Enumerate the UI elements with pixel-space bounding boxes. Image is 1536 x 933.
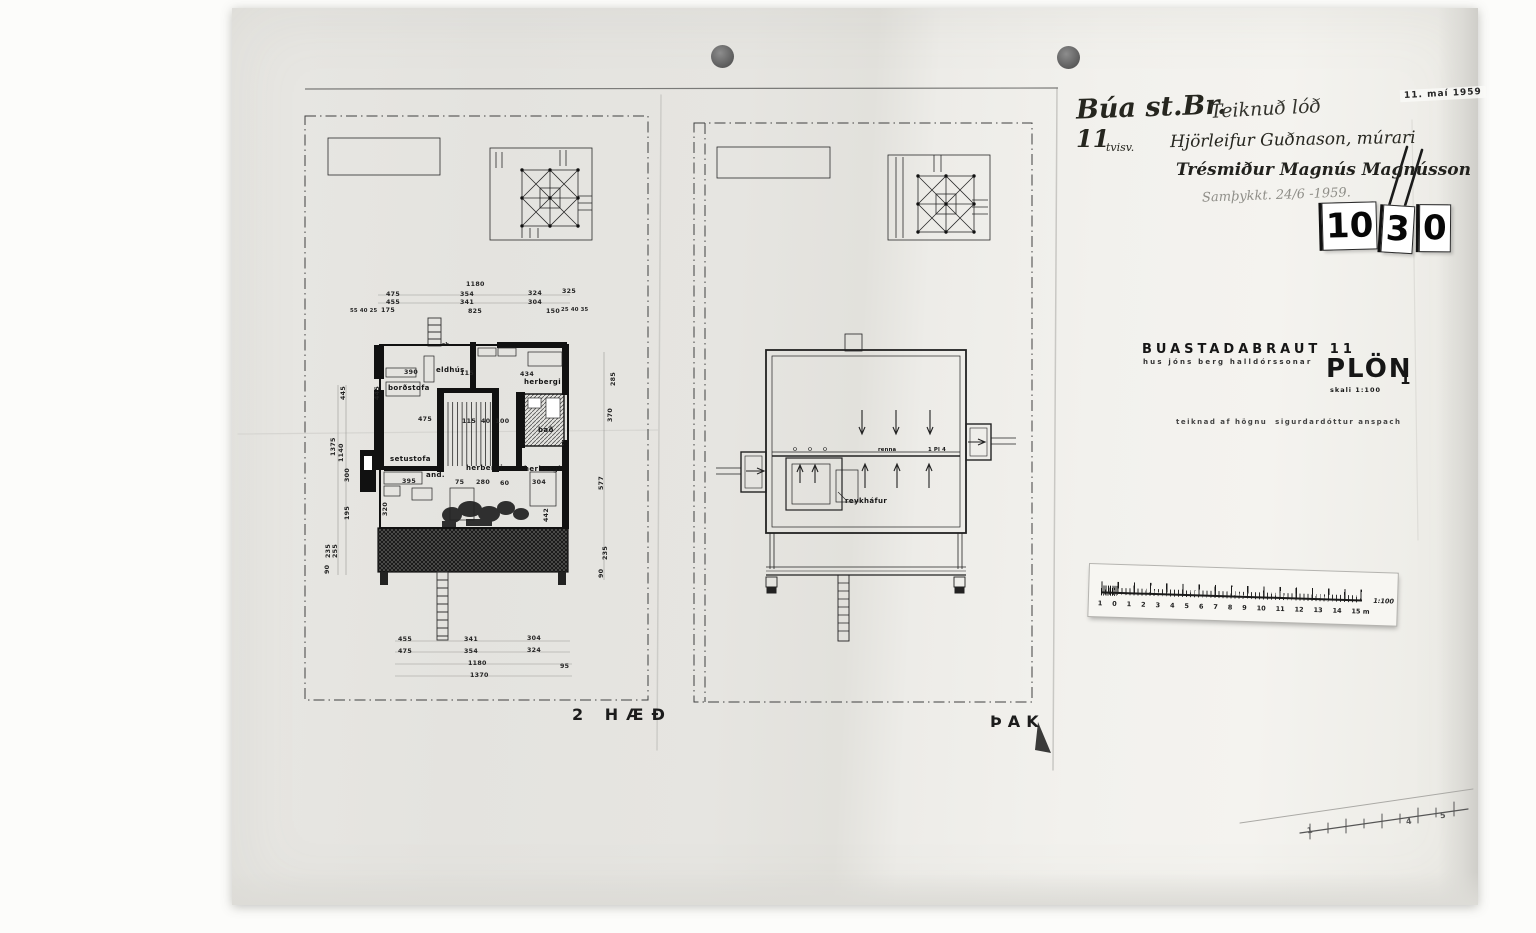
dimension-label: 341 (460, 299, 474, 306)
floor-plan-drawing (338, 295, 604, 676)
dimension-label: 55 40 25 (350, 308, 377, 314)
scale-tick-label: 2 (1141, 601, 1146, 609)
scale-tick-label: 3 (1155, 601, 1160, 609)
dimension-label: 320 (382, 502, 389, 516)
number-tile: 0 (1419, 204, 1451, 252)
site-symbols-middle (717, 147, 990, 240)
roof-plan-caption: ÞAK (990, 712, 1045, 731)
dimension-label: 1375 (330, 437, 337, 456)
dimension-label: 442 (543, 508, 550, 522)
dimension-label: 475 (398, 648, 412, 655)
dimension-label: 325 (562, 288, 576, 295)
dimension-label: 390 (404, 369, 418, 376)
dimension-label: 304 (527, 635, 541, 642)
handwriting-line1-left: Búa st.Br. (1076, 89, 1227, 125)
dimension-label: 75 (455, 479, 464, 486)
dimension-label: 304 (532, 479, 546, 486)
scale-tick-label: 14 (1332, 607, 1341, 615)
diag-ruler-label: 4 (1405, 817, 1412, 827)
dimension-label: 1140 (338, 443, 345, 462)
scale-ratio: 1:100 (1373, 597, 1394, 606)
dimension-label: 1180 (468, 660, 487, 667)
scale-tick-label: 12 (1294, 605, 1303, 613)
dimension-label: 455 (398, 636, 412, 643)
scale-tick-label: 9 (1242, 604, 1247, 612)
dimension-label: 90 (598, 569, 605, 578)
dimension-label: 475 (418, 416, 432, 423)
room-label-bath: bað (538, 426, 554, 434)
scale-tick-label: 11 (1276, 605, 1285, 613)
dimension-label: 825 (468, 308, 482, 315)
diagonal-scale-lines (1240, 789, 1473, 839)
handwriting-note-small: tvisv. (1106, 141, 1134, 154)
title-sheet-number: 1 (1400, 370, 1410, 388)
room-label-living: setustofa (390, 455, 431, 463)
scale-tick-label: 10 (1257, 604, 1266, 612)
title-credit: teiknad af högnu sigurdardóttur anspach (1176, 418, 1401, 426)
diag-ruler-label: 1 (1306, 826, 1313, 836)
title-street: BUASTADABRAUT 11 (1142, 342, 1356, 357)
dimension-label: 90 (324, 565, 331, 574)
diag-ruler-label: 5 (1439, 811, 1446, 821)
title-owner: hus jóns berg halldórssonar (1143, 358, 1313, 366)
site-symbols-left (328, 138, 592, 240)
dimension-label: 195 (344, 506, 351, 520)
dimension-label: 1370 (470, 672, 489, 679)
title-scale: skali 1:100 (1330, 386, 1381, 394)
dimension-label: 235 (602, 546, 609, 560)
dimension-label: 370 (607, 408, 614, 422)
room-label-hall: and. (426, 471, 445, 479)
gutter-note: 1 Pl 4 (928, 447, 946, 453)
dimension-label: 455 (386, 299, 400, 306)
dimension-label: 115 (460, 370, 474, 377)
scale-tick-label: 4 (1170, 602, 1175, 610)
scale-tick-label: 5 (1184, 602, 1189, 610)
dimension-label: 95 (560, 663, 569, 670)
dimension-label: 434 (520, 371, 534, 378)
handwriting-name2: Trésmiður Magnús Magnússon (1176, 160, 1471, 180)
archive-number-stamp: 10 3 0 (1321, 201, 1451, 252)
dimension-label: 354 (460, 291, 474, 298)
dimension-label: 235 (325, 544, 332, 558)
dimension-label: 324 (527, 647, 541, 654)
scanned-drawing-photo: eldhús borðstofa herbergi setustofa and.… (0, 0, 1536, 933)
roof-plan-drawing (716, 334, 1016, 641)
scale-bar-labels: 10123456789101112131415 m (1098, 599, 1370, 616)
room-label-bedroom1: herbergi (524, 378, 561, 386)
dimension-label: 150 (546, 308, 560, 315)
floor-plan-caption: 2 HÆÐ (572, 705, 673, 724)
handwriting-name1: Hjörleifur Guðnason, múrari (1170, 128, 1416, 152)
room-label-dining: borðstofa (388, 384, 430, 392)
dimension-label: 395 (402, 478, 416, 485)
scale-tick-label: 8 (1228, 603, 1233, 611)
dimension-label: 115 40 100 (462, 418, 509, 425)
dimension-label: 341 (464, 636, 478, 643)
dimension-label: 60 (500, 480, 509, 487)
dimension-label: 445 (340, 386, 347, 400)
scale-tick-label: 15 m (1351, 607, 1369, 616)
scale-tick-label: 13 (1313, 606, 1322, 614)
scale-tick-label: 0 (1112, 600, 1117, 608)
chimney-label: reykháfur (845, 497, 887, 505)
gutter-label: renna (878, 447, 896, 453)
dimension-label: 285 (610, 372, 617, 386)
dimension-label: 280 (476, 479, 490, 486)
room-label-bedroom2: herbergi (466, 464, 503, 472)
handwriting-number: 11 (1076, 124, 1109, 153)
dimension-label: 324 (528, 290, 542, 297)
room-label-bedroom3: herbergi (524, 465, 561, 473)
scale-bar: 10123456789101112131415 m 1:100 (1088, 564, 1397, 626)
dimension-label: 25 40 35 (561, 307, 588, 313)
scale-tick-label: 1 (1098, 599, 1103, 607)
number-tile: 3 (1381, 204, 1416, 254)
scale-tick-label: 6 (1199, 602, 1204, 610)
dimension-label: 354 (464, 648, 478, 655)
dimension-label: 175 (381, 307, 395, 314)
dimension-label: 300 (344, 468, 351, 482)
scale-tick-label: 7 (1213, 603, 1218, 611)
scale-tick-label: 1 (1127, 600, 1132, 608)
dimension-label: 445 (374, 386, 381, 400)
number-tile: 10 (1321, 201, 1378, 250)
dimension-label: 304 (528, 299, 542, 306)
dimension-label: 475 (386, 291, 400, 298)
dimension-label: 255 (332, 544, 339, 558)
dimension-label: 577 (598, 476, 605, 490)
dimension-label: 1180 (466, 281, 485, 288)
room-label-closet: sk. (442, 342, 451, 348)
